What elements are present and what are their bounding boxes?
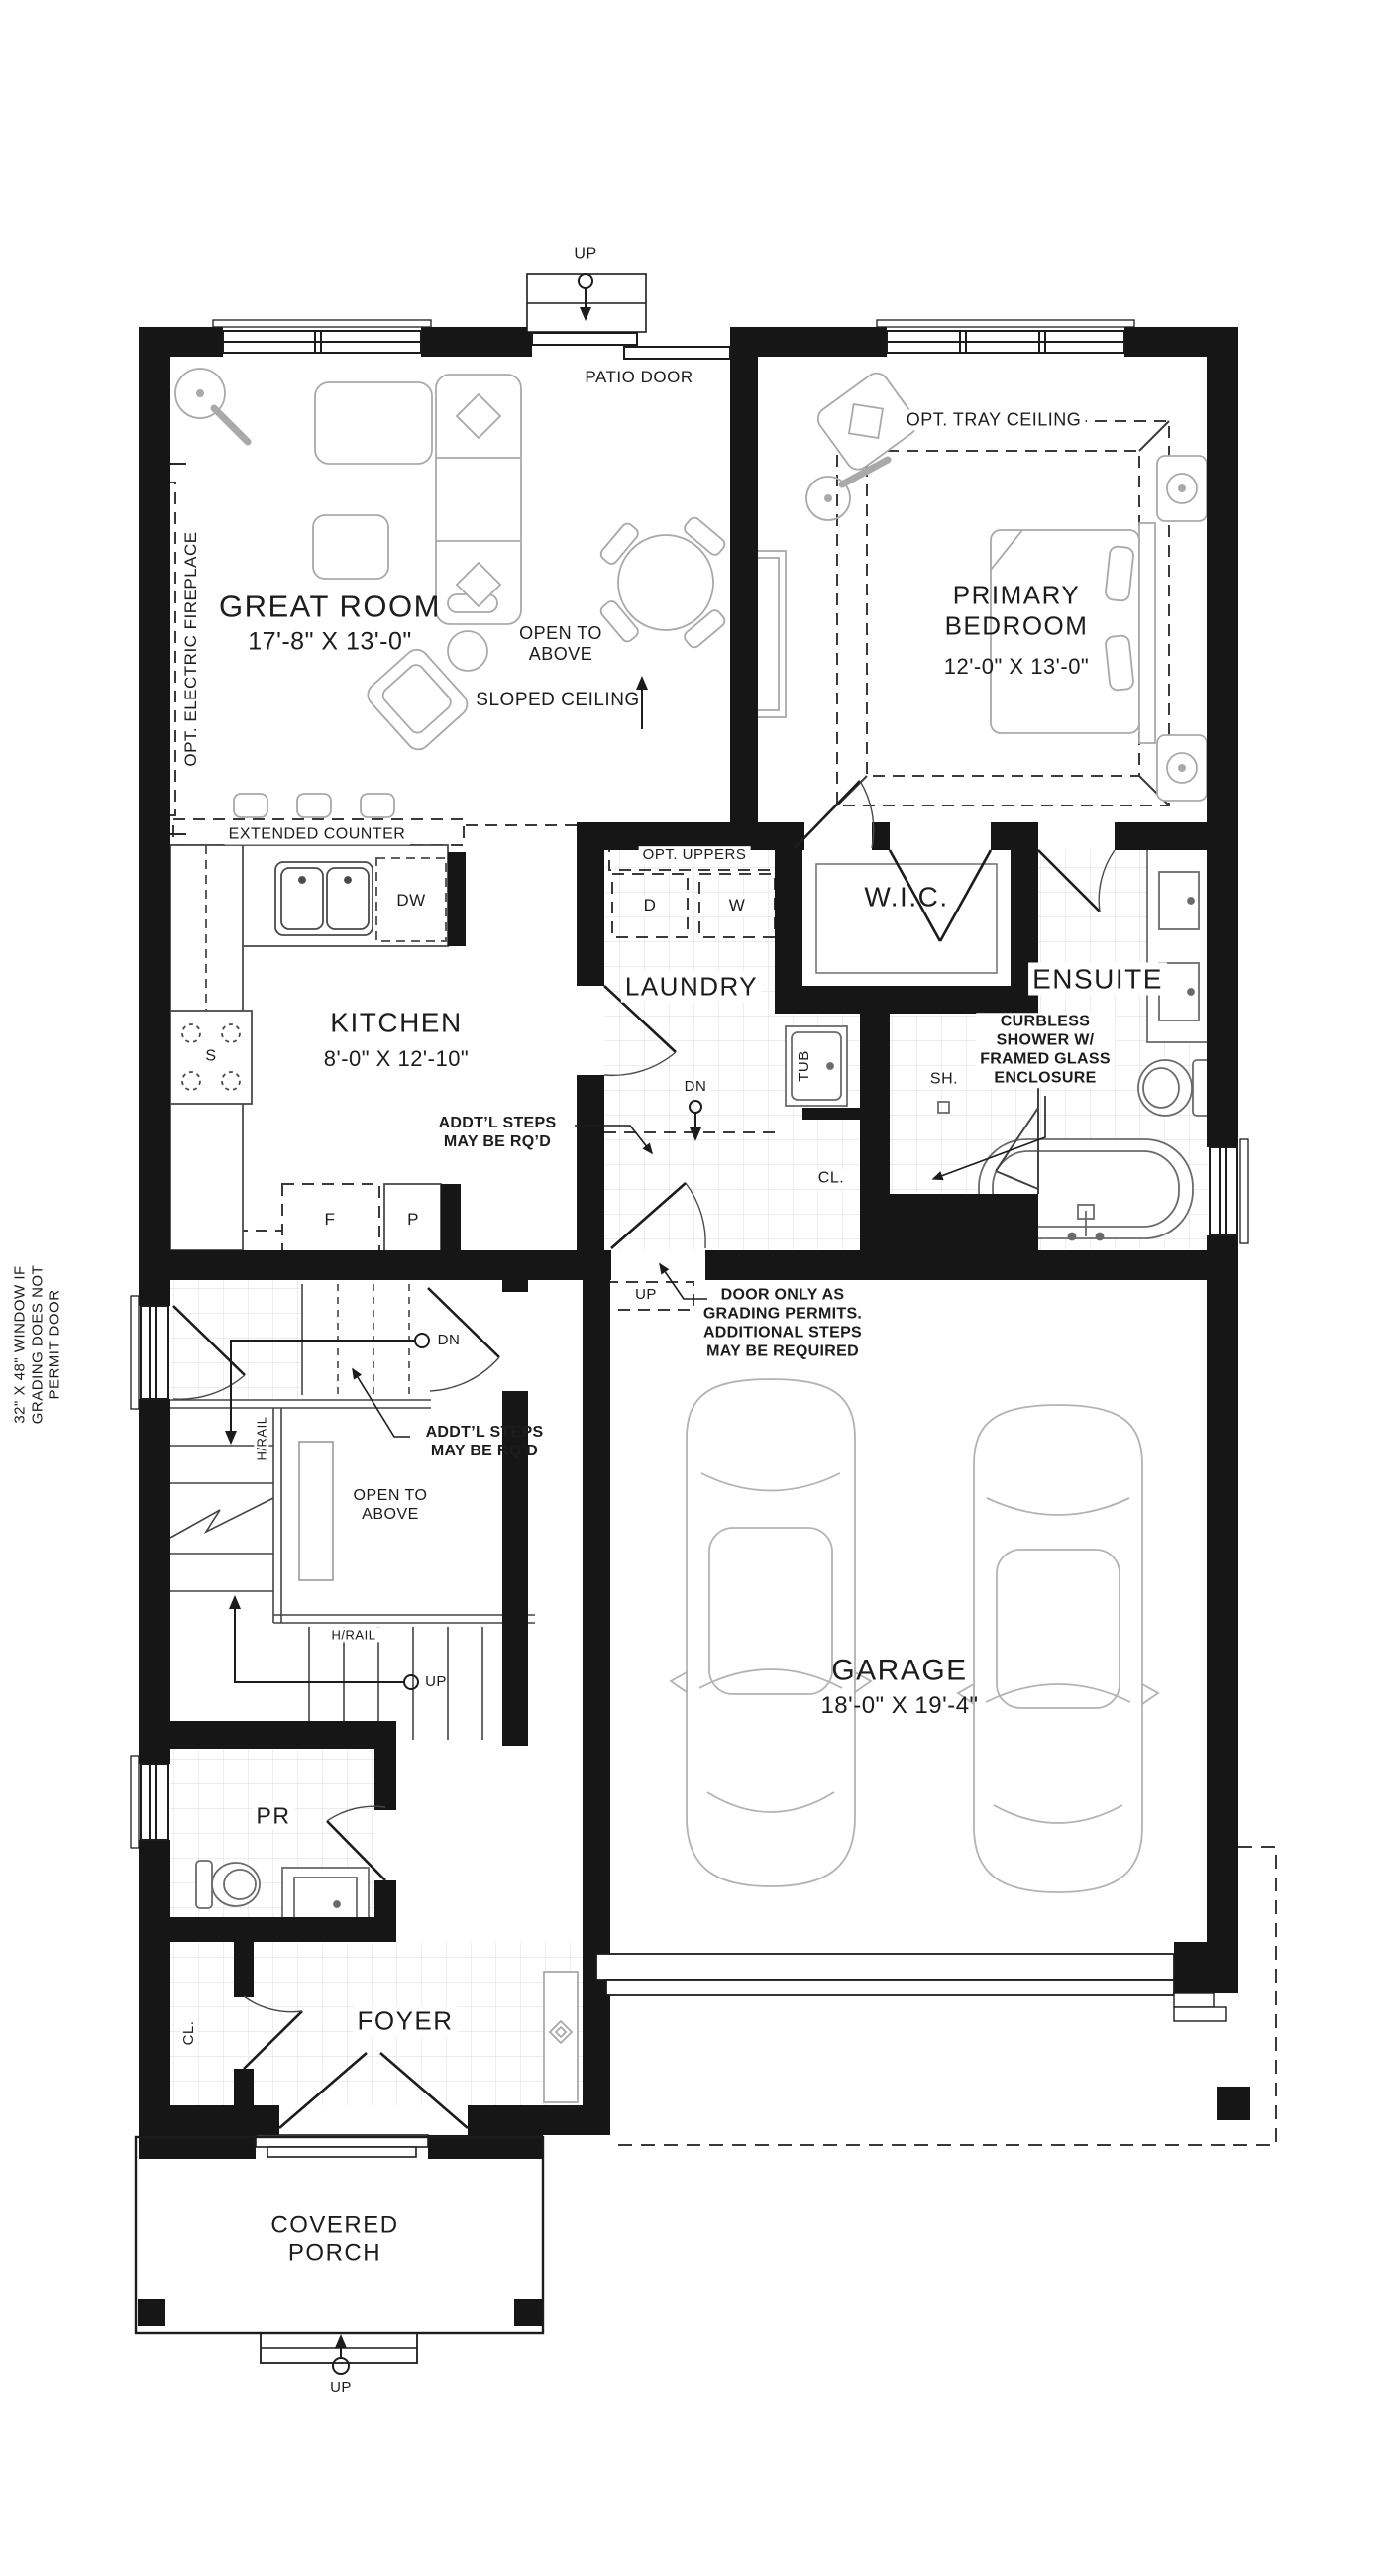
primary-bedroom-label: PRIMARY BEDROOM <box>945 580 1089 640</box>
car-icon <box>671 1379 871 1886</box>
handrail-horizontal-label: H/RAIL <box>328 1627 380 1642</box>
sloped-ceiling-label: SLOPED CEILING <box>476 690 639 711</box>
shower-label: SH. <box>926 1071 962 1090</box>
garage-cars <box>671 1379 1158 1892</box>
opt-fireplace-label: OPT. ELECTRIC FIREPLACE <box>181 531 201 766</box>
break-line <box>170 1498 273 1538</box>
window-sill <box>213 320 431 327</box>
ensuite-label: ENSUITE <box>1028 962 1167 995</box>
bedroom-door-leaf <box>795 781 860 848</box>
open-to-above-great-label: OPEN TO ABOVE <box>519 623 602 665</box>
window-sill <box>1240 1139 1248 1243</box>
closet-foyer-label: CL. <box>180 2017 198 2050</box>
dining-set <box>598 515 727 650</box>
loveseat <box>315 382 432 464</box>
covered-porch-label: COVERED PORCH <box>270 2212 398 2269</box>
window-grading-note: 32" X 48" WINDOW IF GRADING DOES NOT PER… <box>11 1265 63 1425</box>
garage-label: GARAGE <box>831 1653 967 1687</box>
window-sill <box>877 320 1134 327</box>
great-room-dims: 17'-8" X 13'-0" <box>248 627 411 657</box>
wic-label: W.I.C. <box>864 880 948 912</box>
toilet-symbol-pr <box>196 1861 260 1908</box>
foyer-label: FOYER <box>353 2006 457 2037</box>
up-stairs-node <box>404 1675 418 1689</box>
kitchen-dims: 8'-0" X 12'-10" <box>324 1046 469 1072</box>
bedroom-floor-lamp-icon <box>806 460 888 520</box>
ensuite-window <box>1210 1147 1237 1235</box>
laundry-label: LAUNDRY <box>621 972 762 1003</box>
opt-tray-ceiling-label: OPT. TRAY CEILING <box>903 409 1086 430</box>
toilet-symbol-ensuite <box>1138 1060 1211 1116</box>
left-treads-lower <box>170 1554 273 1591</box>
front-door-threshold <box>256 2135 428 2157</box>
bar-stools <box>234 794 394 817</box>
up-patio-label: UP <box>574 246 596 265</box>
dryer-label: D <box>640 896 661 915</box>
vert-rail <box>273 1408 281 1623</box>
primary-bedroom-dims: 12'-0" X 13'-0" <box>944 654 1089 680</box>
nightstands <box>1157 456 1207 801</box>
pr-label: PR <box>253 1802 295 1829</box>
up-porch-label: UP <box>330 2379 352 2397</box>
armchair <box>363 645 472 754</box>
addtl-steps-kitchen-label: ADDT’L STEPS MAY BE RQ’D <box>439 1115 557 1152</box>
floor-plan: UP PATIO DOOR OPT. ELECTRIC FIREPLACE GR… <box>0 0 1387 2576</box>
car-icon <box>958 1405 1158 1892</box>
washer-label: W <box>725 896 750 915</box>
dn-stairs-label: DN <box>438 1332 461 1349</box>
up-porch-node <box>333 2358 349 2374</box>
sectional-sofa <box>436 375 521 624</box>
dishwasher-label: DW <box>396 891 425 911</box>
closet-hall-label: CL. <box>814 1170 848 1189</box>
garage-door-threshold <box>596 1954 1174 1995</box>
addtl-steps-stairs-label: ADDT’L STEPS MAY BE RQ’D <box>426 1424 544 1461</box>
opt-uppers-label: OPT. UPPERS <box>639 846 751 864</box>
pantry-label: P <box>407 1210 419 1230</box>
dn-laundry-label: DN <box>681 1078 711 1096</box>
door-grading-note: DOOR ONLY AS GRADING PERMITS. ADDITIONAL… <box>703 1286 862 1361</box>
dn-stairs-node <box>415 1334 429 1347</box>
patio-door-label: PATIO DOOR <box>585 368 693 387</box>
up-stairs-label: UP <box>425 1673 447 1691</box>
fridge-label: F <box>325 1210 336 1230</box>
floor-lamp-icon <box>175 369 248 442</box>
foyer-bench <box>544 1972 578 2102</box>
kitchen-label: KITCHEN <box>330 1006 462 1038</box>
great-room-label: GREAT ROOM <box>219 590 441 626</box>
up-garage-steps-label: UP <box>631 1286 661 1304</box>
bottom-rail <box>273 1615 535 1623</box>
curbless-shower-label: CURBLESS SHOWER W/ FRAMED GLASS ENCLOSUR… <box>976 1013 1115 1088</box>
side-table <box>448 631 487 671</box>
ottoman <box>313 515 388 579</box>
stair-curb <box>299 1442 333 1580</box>
kitchen-sink <box>275 862 373 935</box>
mid-rail <box>170 1400 431 1408</box>
tub-label: TUB <box>796 1046 813 1086</box>
floor-plan-drawing <box>0 0 1387 2576</box>
patio-door-symbol <box>532 333 730 359</box>
handrail-vertical-label: H/RAIL <box>254 1413 268 1465</box>
open-to-above-stairs-label: OPEN TO ABOVE <box>354 1487 428 1525</box>
stove-label: S <box>205 1048 216 1067</box>
apron-steps <box>1174 1993 1226 2021</box>
window-sill <box>131 1756 139 1848</box>
garage-dims: 18'-0" X 19'-4" <box>820 1692 978 1720</box>
addtl-steps-stairs-leader <box>353 1369 410 1437</box>
extended-counter-label: EXTENDED COUNTER <box>225 826 410 845</box>
window-sill <box>131 1296 139 1409</box>
